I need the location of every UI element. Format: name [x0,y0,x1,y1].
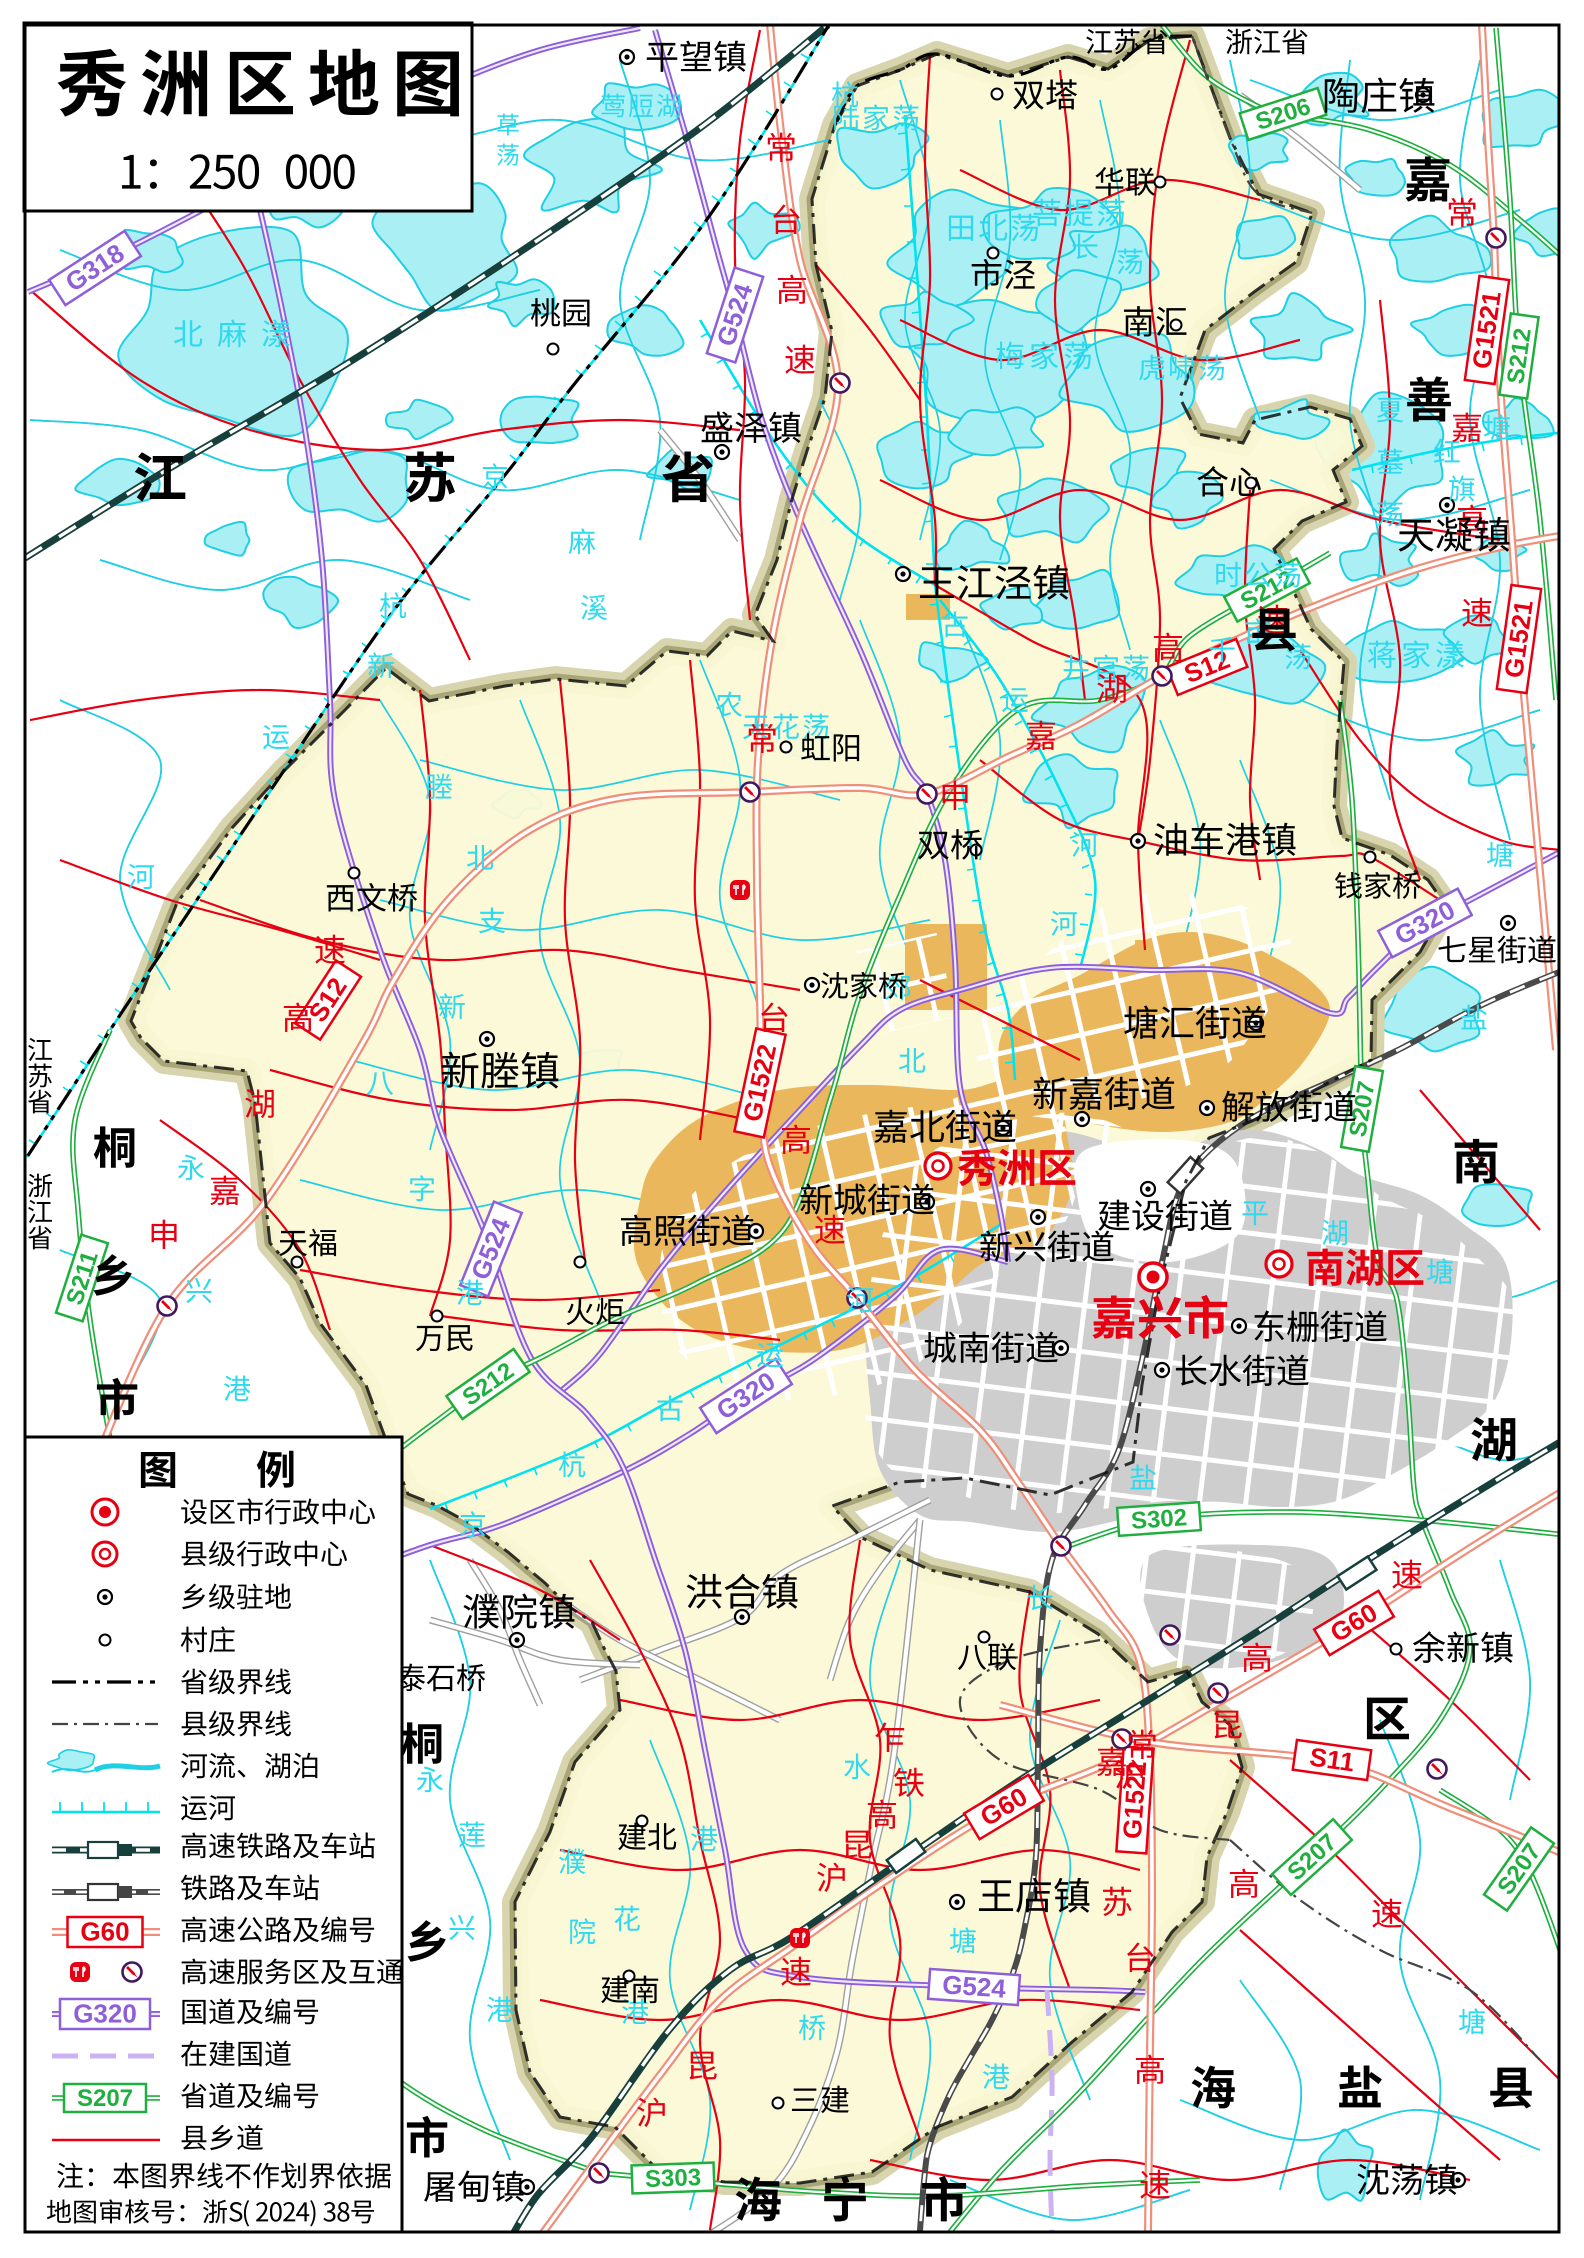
svg-text:S207: S207 [77,2085,133,2112]
svg-text:G524: G524 [941,1969,1007,2003]
svg-text:S302: S302 [1130,1504,1188,1535]
svg-text:G320: G320 [73,1999,137,2029]
svg-text:G60: G60 [80,1917,129,1947]
svg-text:S303: S303 [645,2164,702,2193]
svg-text:S11: S11 [1308,1742,1357,1778]
